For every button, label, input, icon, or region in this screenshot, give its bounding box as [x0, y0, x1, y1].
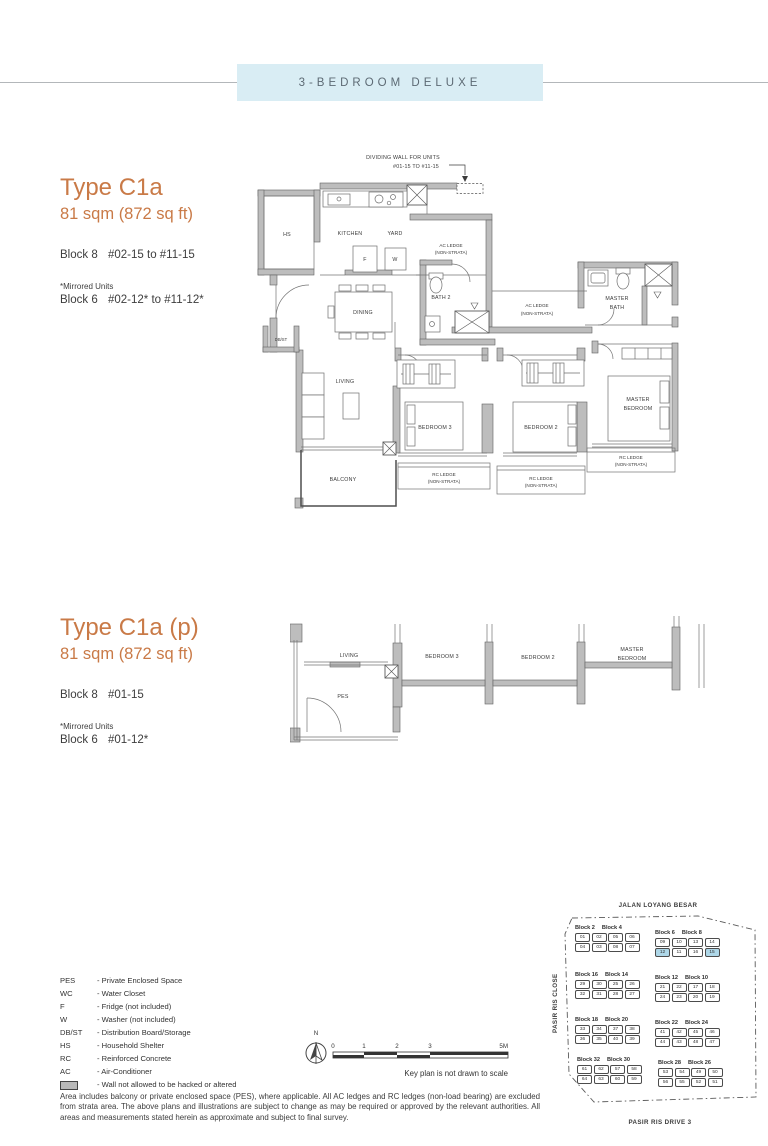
legend-item: W- Washer (not included): [60, 1013, 236, 1026]
keyplan-unit: 09: [655, 938, 670, 947]
keyplan-unit: 28: [608, 990, 623, 999]
keyplan-unit: 61: [577, 1065, 592, 1074]
keyplan-unit: 08: [608, 943, 623, 952]
legend-desc: - Household Shelter: [97, 1039, 164, 1052]
keyplan-unit: 05: [608, 933, 623, 942]
svg-text:(NON-STRATA): (NON-STRATA): [435, 250, 468, 255]
keyplan-unit: 51: [708, 1078, 723, 1087]
keyplan-unit: 35: [592, 1035, 607, 1044]
plan2-lines: [294, 616, 704, 740]
keyplan-unit: 31: [592, 990, 607, 999]
keyplan-unit: 37: [608, 1025, 623, 1034]
type-c1a-p-area: 81 sqm (872 sq ft): [60, 645, 199, 664]
type-c1a-area: 81 sqm (872 sq ft): [60, 205, 204, 224]
keyplan-unit: 39: [625, 1035, 640, 1044]
keyplan-unit: 36: [575, 1035, 590, 1044]
keyplan-unit: 52: [691, 1078, 706, 1087]
keyplan-unit: 34: [592, 1025, 607, 1034]
legend-desc: - Water Closet: [97, 987, 145, 1000]
keyplan-unit: 53: [658, 1068, 673, 1077]
section-banner: 3-BEDROOM DELUXE: [237, 64, 543, 101]
pes-label: PES: [337, 694, 348, 700]
keyplan-block-labels: Block 16Block 14: [575, 972, 640, 978]
keyplan-unit: 50: [708, 1068, 723, 1077]
keyplan-unit: 41: [655, 1028, 670, 1037]
washer-label: W: [392, 257, 397, 263]
keyplan-unit: 03: [592, 943, 607, 952]
svg-text:3: 3: [428, 1043, 432, 1050]
floorplan-c1a-p: LIVING PES BEDROOM 3 BEDROOM 2 MASTER BE…: [290, 612, 710, 752]
bedroom2-label: BEDROOM 2: [524, 425, 558, 431]
north-label: N: [314, 1030, 318, 1037]
keyplan-block-labels: Block 28Block 26: [658, 1060, 723, 1066]
keyplan-cluster: Block 22Block 244142454644434847: [655, 1020, 720, 1047]
dividing-wall-segment: [457, 184, 483, 194]
svg-text:BEDROOM: BEDROOM: [624, 406, 653, 412]
keyplan-unit: 29: [575, 980, 590, 989]
keyplan-unit: 06: [625, 933, 640, 942]
keyplan-block-labels: Block 22Block 24: [655, 1020, 720, 1026]
keyplan-unit: 24: [655, 993, 670, 1002]
mirrored-units-note: *Mirrored Units: [60, 282, 204, 291]
keyplan-cluster: Block 32Block 306162575864636059: [577, 1057, 642, 1084]
rc-ledge3-label: RC LEDGE: [619, 455, 643, 460]
legend-abbr: W: [60, 1013, 97, 1026]
legend-desc: - Private Enclosed Space: [97, 974, 182, 987]
svg-text:5M: 5M: [499, 1043, 508, 1050]
keyplan-unit: 49: [691, 1068, 706, 1077]
legend-abbr: F: [60, 1000, 97, 1013]
legend-desc: - Distribution Board/Storage: [97, 1026, 191, 1039]
keyplan-unit: 17: [688, 983, 703, 992]
svg-text:2: 2: [395, 1043, 399, 1050]
yard-label: YARD: [387, 231, 402, 237]
keyplan-unit: 27: [625, 990, 640, 999]
legend-desc: - Reinforced Concrete: [97, 1052, 171, 1065]
keyplan-unit: 21: [655, 983, 670, 992]
type-c1a-p-title: Type C1a (p): [60, 614, 199, 642]
legend-desc: - Air-Conditioner: [97, 1065, 152, 1078]
keyplan-unit: 12: [655, 948, 670, 957]
legend-desc: - Washer (not included): [97, 1013, 176, 1026]
living-label-p: LIVING: [340, 653, 359, 659]
kitchen-label: KITCHEN: [338, 231, 363, 237]
keyplan-unit: 55: [675, 1078, 690, 1087]
rc-ledge1-label: RC LEDGE: [432, 472, 456, 477]
keyplan-unit: 32: [575, 990, 590, 999]
master-bedroom-label-p: MASTER: [620, 647, 643, 653]
keyplan-unit: 14: [705, 938, 720, 947]
legend-item: WC- Water Closet: [60, 987, 236, 1000]
plan2-walls: [290, 624, 680, 742]
svg-text:(NON-STRATA): (NON-STRATA): [615, 462, 648, 467]
type-c1a-p-info: Type C1a (p) 81 sqm (872 sq ft) Block 8#…: [60, 614, 199, 746]
keyplan-unit: 19: [705, 993, 720, 1002]
key-plan: JALAN LOYANG BESAR PASIR RIS CLOSE PASIR…: [548, 893, 768, 1143]
type-c1a-p-block8: Block 8#01-15: [60, 689, 199, 701]
keyplan-unit: 15: [705, 948, 720, 957]
svg-text:(NON-STRATA): (NON-STRATA): [428, 479, 461, 484]
hs-label: HS: [283, 232, 291, 238]
keyplan-unit: 45: [688, 1028, 703, 1037]
dining-label: DINING: [353, 310, 373, 316]
keyplan-block-labels: Block 32Block 30: [577, 1057, 642, 1063]
legend-item: AC- Air-Conditioner: [60, 1065, 236, 1078]
svg-text:0: 0: [331, 1043, 335, 1050]
keyplan-unit: 60: [610, 1075, 625, 1084]
road-jalan-loyang-besar: JALAN LOYANG BESAR: [619, 902, 698, 909]
keyplan-unit: 26: [625, 980, 640, 989]
legend-item: RC- Reinforced Concrete: [60, 1052, 236, 1065]
disclaimer-text: Area includes balcony or private enclose…: [60, 1092, 540, 1123]
svg-text:#01-15 TO #11-15: #01-15 TO #11-15: [393, 164, 439, 170]
svg-text:1: 1: [362, 1043, 366, 1050]
balcony-label: BALCONY: [330, 477, 357, 483]
keyplan-unit: 02: [592, 933, 607, 942]
type-c1a-block6: Block 6#02-12* to #11-12*: [60, 294, 204, 306]
keyplan-cluster: Block 2Block 40102050604030807: [575, 925, 640, 952]
keyplan-block-labels: Block 6Block 8: [655, 930, 720, 936]
keyplan-unit: 25: [608, 980, 623, 989]
legend-abbr: DB/ST: [60, 1026, 97, 1039]
legend-abbr: HS: [60, 1039, 97, 1052]
keyplan-unit: 54: [675, 1068, 690, 1077]
keyplan-unit: 07: [625, 943, 640, 952]
legend-item: HS- Household Shelter: [60, 1039, 236, 1052]
keyplan-unit: 63: [594, 1075, 609, 1084]
keyplan-unit: 38: [625, 1025, 640, 1034]
scale-bar: 0 1 2 3 5M: [331, 1040, 513, 1066]
keyplan-block-labels: Block 2Block 4: [575, 925, 640, 931]
keyplan-unit: 16: [688, 948, 703, 957]
keyplan-unit: 10: [672, 938, 687, 947]
bath2-label: BATH 2: [431, 295, 450, 301]
keyplan-unit: 59: [627, 1075, 642, 1084]
keyplan-cluster: Block 16Block 142930252632312827: [575, 972, 640, 999]
legend-item: DB/ST- Distribution Board/Storage: [60, 1026, 236, 1039]
keyplan-unit: 11: [672, 948, 687, 957]
ac-ledge2-label: AC LEDGE: [525, 303, 548, 308]
keyplan-cluster: Block 18Block 203334373836354039: [575, 1017, 640, 1044]
keyplan-cluster: Block 12Block 102122171824232019: [655, 975, 720, 1002]
type-c1a-block8: Block 8#02-15 to #11-15: [60, 249, 204, 261]
svg-text:BEDROOM: BEDROOM: [618, 656, 647, 662]
keyplan-unit: 01: [575, 933, 590, 942]
legend-abbr: RC: [60, 1052, 97, 1065]
legend: PES- Private Enclosed SpaceWC- Water Clo…: [60, 974, 236, 1094]
keyplan-block-labels: Block 12Block 10: [655, 975, 720, 981]
keyplan-unit: 30: [592, 980, 607, 989]
keyplan-unit: 64: [577, 1075, 592, 1084]
dbst-label: DB/ST: [275, 337, 288, 342]
type-c1a-title: Type C1a: [60, 174, 204, 202]
keyplan-unit: 40: [608, 1035, 623, 1044]
floorplan-page: 3-BEDROOM DELUXE Type C1a 81 sqm (872 sq…: [0, 0, 768, 1146]
keyplan-cluster: Block 6Block 80910131412111615: [655, 930, 720, 957]
type-c1a-p-block6: Block 6#01-12*: [60, 734, 199, 746]
keyplan-unit: 46: [705, 1028, 720, 1037]
keyplan-cluster: Block 28Block 265354495056555251: [658, 1060, 723, 1087]
keyplan-note: Key plan is not drawn to scale: [338, 1069, 508, 1078]
keyplan-unit: 43: [672, 1038, 687, 1047]
legend-item: F- Fridge (not included): [60, 1000, 236, 1013]
master-bedroom-label: MASTER: [626, 397, 649, 403]
north-arrow: N: [303, 1026, 331, 1072]
dividing-wall-annotation: DIVIDING WALL FOR UNITS #01-15 TO #11-15: [366, 155, 468, 182]
keyplan-unit: 18: [705, 983, 720, 992]
keyplan-unit: 13: [688, 938, 703, 947]
rc-ledge2-label: RC LEDGE: [529, 476, 553, 481]
plan2-window-box: [385, 665, 398, 678]
keyplan-unit: 04: [575, 943, 590, 952]
legend-abbr: PES: [60, 974, 97, 987]
keyplan-unit: 47: [705, 1038, 720, 1047]
keyplan-unit: 58: [627, 1065, 642, 1074]
legend-desc: - Fridge (not included): [97, 1000, 171, 1013]
svg-text:BATH: BATH: [610, 305, 625, 311]
wall-symbol-swatch: [60, 1081, 78, 1090]
svg-text:DIVIDING WALL FOR UNITS: DIVIDING WALL FOR UNITS: [366, 155, 440, 161]
living-label: LIVING: [336, 379, 355, 385]
master-bath-label: MASTER: [605, 296, 628, 302]
svg-text:(NON-STRATA): (NON-STRATA): [525, 483, 558, 488]
legend-abbr: WC: [60, 987, 97, 1000]
keyplan-block-labels: Block 18Block 20: [575, 1017, 640, 1023]
keyplan-unit: 22: [672, 983, 687, 992]
floorplan-c1a: DIVIDING WALL FOR UNITS #01-15 TO #11-15: [255, 148, 710, 520]
keyplan-unit: 42: [672, 1028, 687, 1037]
keyplan-unit: 44: [655, 1038, 670, 1047]
keyplan-unit: 62: [594, 1065, 609, 1074]
keyplan-unit: 23: [672, 993, 687, 1002]
road-pasir-ris-close: PASIR RIS CLOSE: [552, 973, 559, 1033]
section-title: 3-BEDROOM DELUXE: [299, 77, 482, 89]
keyplan-unit: 48: [688, 1038, 703, 1047]
mirrored-units-note-2: *Mirrored Units: [60, 722, 199, 731]
plan1-room-labels: HS KITCHEN YARD F W AC LEDGE (NON-STRATA…: [275, 231, 653, 488]
bedroom2-label-p: BEDROOM 2: [521, 655, 555, 661]
keyplan-unit: 33: [575, 1025, 590, 1034]
svg-text:(NON-STRATA): (NON-STRATA): [521, 311, 554, 316]
bedroom3-label-p: BEDROOM 3: [425, 654, 459, 660]
keyplan-unit: 20: [688, 993, 703, 1002]
legend-abbr: AC: [60, 1065, 97, 1078]
ac-ledge1-label: AC LEDGE: [439, 243, 462, 248]
keyplan-unit: 56: [658, 1078, 673, 1087]
keyplan-unit: 57: [610, 1065, 625, 1074]
type-c1a-info: Type C1a 81 sqm (872 sq ft) Block 8#02-1…: [60, 174, 204, 306]
plan1-walls: [258, 183, 678, 508]
road-pasir-ris-drive-3: PASIR RIS DRIVE 3: [628, 1119, 691, 1126]
legend-item: PES- Private Enclosed Space: [60, 974, 236, 987]
fridge-label: F: [363, 257, 367, 263]
bedroom3-label: BEDROOM 3: [418, 425, 452, 431]
